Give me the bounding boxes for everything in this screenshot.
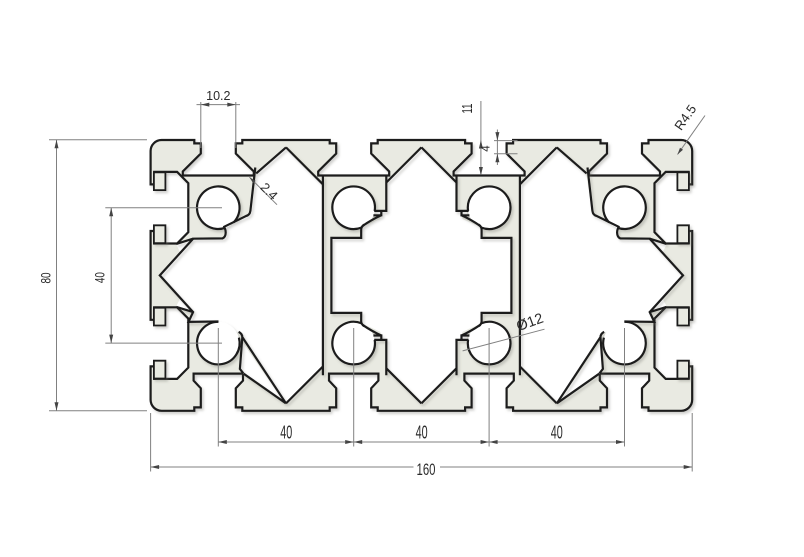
svg-text:40: 40 — [551, 423, 563, 443]
svg-text:10.2: 10.2 — [206, 89, 230, 103]
svg-text:80: 80 — [38, 272, 54, 283]
svg-text:40: 40 — [416, 423, 428, 443]
svg-text:40: 40 — [92, 272, 108, 283]
svg-text:160: 160 — [417, 460, 436, 479]
svg-text:4: 4 — [481, 145, 493, 152]
svg-text:40: 40 — [280, 423, 292, 443]
svg-text:11: 11 — [459, 104, 476, 114]
